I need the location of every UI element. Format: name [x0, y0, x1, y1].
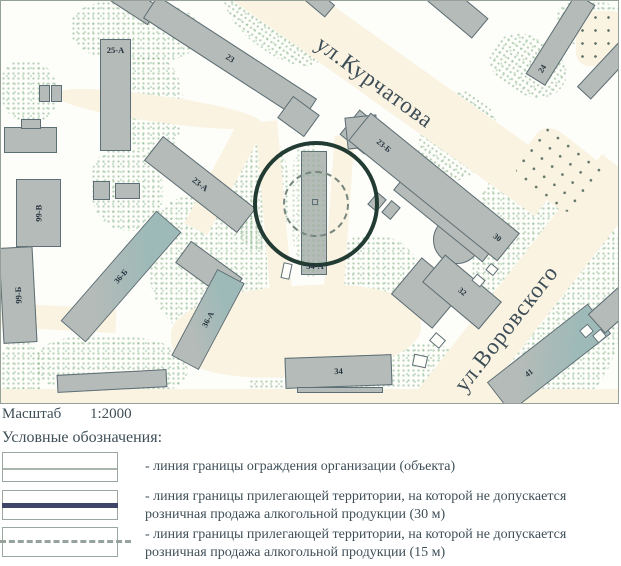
legend-text-30m: - линия границы прилегающей территории, … [145, 488, 621, 523]
building-label: 99-В [34, 205, 43, 222]
building-label: 32 [456, 286, 467, 297]
building [381, 200, 400, 220]
legend-symbol-15m-line [2, 527, 118, 557]
building-label: 36-А [201, 310, 216, 328]
boundary-15m-line-sample [0, 540, 131, 543]
legend-text-15m: - линия границы прилегающей территории, … [145, 526, 621, 561]
building [297, 387, 383, 393]
building [93, 181, 110, 200]
legend-text-fence: - линия границы ограждения организации (… [145, 458, 621, 476]
scale-label: Масштаб [2, 406, 61, 423]
building-label: 23 [224, 53, 236, 65]
building-25a: 25-А [100, 39, 131, 151]
building-label: 24 [532, 63, 547, 81]
building-label: 36-Б [113, 268, 130, 285]
building-99b: 99-Б [0, 246, 37, 344]
legend-title: Условные обозначения: [2, 429, 162, 447]
center-marker [312, 199, 318, 205]
fence-line-sample [3, 468, 117, 470]
building [39, 85, 50, 102]
boundary-30m-line-sample [2, 503, 118, 508]
building [4, 127, 57, 153]
building-34: 34 [284, 354, 392, 389]
building [51, 85, 62, 102]
building-label: 41 [497, 368, 535, 400]
legend-symbol-fence-line [2, 452, 118, 482]
scale-value: 1:2000 [90, 406, 132, 423]
building-label-34a: 34-А [295, 262, 335, 271]
building-label: 23-А [190, 176, 209, 193]
building-99v: 99-В [16, 179, 61, 247]
building-label: 30 [491, 232, 510, 250]
legend-symbol-30m-line [2, 490, 118, 520]
building-label: 34 [334, 367, 343, 376]
building-label: 25-А [107, 46, 124, 55]
building [427, 0, 488, 39]
building [115, 183, 140, 199]
garage [412, 354, 428, 369]
building-label: 23-Б [358, 124, 393, 154]
map-canvas: 25-А 23 23-А 23-Б 30 24 99-В 99-Б [0, 0, 619, 404]
building [21, 119, 41, 129]
building-label: 99-Б [13, 286, 22, 303]
page: 25-А 23 23-А 23-Б 30 24 99-В 99-Б [0, 0, 621, 566]
